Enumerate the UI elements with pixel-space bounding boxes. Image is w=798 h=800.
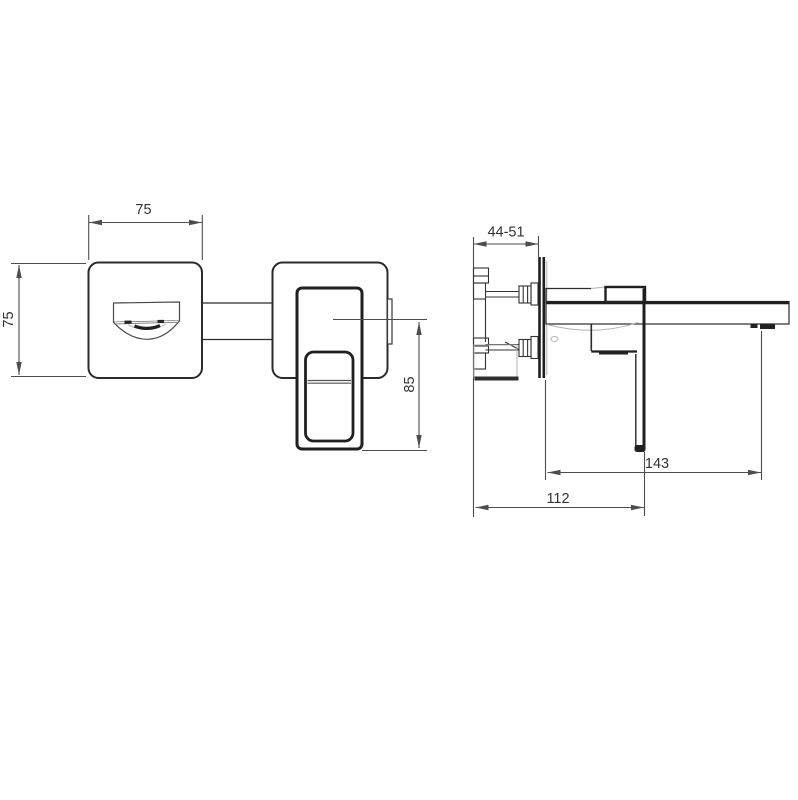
drawing-sheet: 75 75 85 bbox=[0, 0, 798, 800]
handle-pivot-block bbox=[606, 287, 646, 302]
side-view: 44-51 143 112 bbox=[474, 225, 790, 518]
spout-bar bbox=[546, 302, 789, 325]
lower-body-base bbox=[475, 377, 519, 381]
top-mounting-nut bbox=[519, 286, 531, 303]
in-wall-valve-body bbox=[474, 268, 539, 381]
dim-label-plate-width: 75 bbox=[135, 202, 151, 218]
aerator-side-large bbox=[760, 324, 775, 329]
dim-label-install-depth: 44-51 bbox=[487, 225, 524, 241]
spout-side bbox=[546, 302, 789, 330]
aerator-side-small bbox=[751, 324, 758, 328]
connector-body bbox=[203, 303, 273, 340]
bottom-mounting-nut bbox=[519, 340, 531, 357]
dim-install-depth: 44-51 bbox=[474, 225, 539, 258]
plate-side-tab bbox=[388, 299, 393, 344]
ledge-shading-line bbox=[591, 287, 606, 289]
spout-face bbox=[114, 302, 180, 322]
body-detail-circle bbox=[551, 337, 558, 342]
front-view: 75 75 85 bbox=[1, 202, 427, 451]
spout-edge-tick-right bbox=[158, 320, 165, 323]
dim-label-plate-height: 75 bbox=[1, 311, 17, 327]
top-washer bbox=[531, 283, 538, 305]
handle-lever-front bbox=[306, 352, 354, 441]
dim-plate-height: 75 bbox=[1, 264, 86, 377]
spout-edge-tick-left bbox=[125, 321, 132, 324]
dim-plate-width: 75 bbox=[89, 202, 203, 260]
dim-spout-reach: 143 bbox=[546, 331, 762, 480]
dim-label-spout-reach: 143 bbox=[645, 456, 669, 472]
dim-label-body-depth: 112 bbox=[546, 491, 569, 507]
dim-body-depth: 112 bbox=[476, 452, 645, 516]
spout-base-ledge bbox=[546, 289, 591, 302]
body-bottom-tick bbox=[599, 351, 628, 355]
lever-tip bbox=[635, 445, 646, 452]
bottom-washer bbox=[531, 337, 538, 359]
top-inlet-step bbox=[474, 283, 486, 299]
technical-drawing-canvas: 75 75 85 bbox=[0, 0, 798, 800]
mixer-body-under-spout bbox=[547, 323, 638, 355]
dim-label-handle-drop: 85 bbox=[402, 376, 418, 392]
bottom-inlet-step bbox=[474, 353, 486, 369]
